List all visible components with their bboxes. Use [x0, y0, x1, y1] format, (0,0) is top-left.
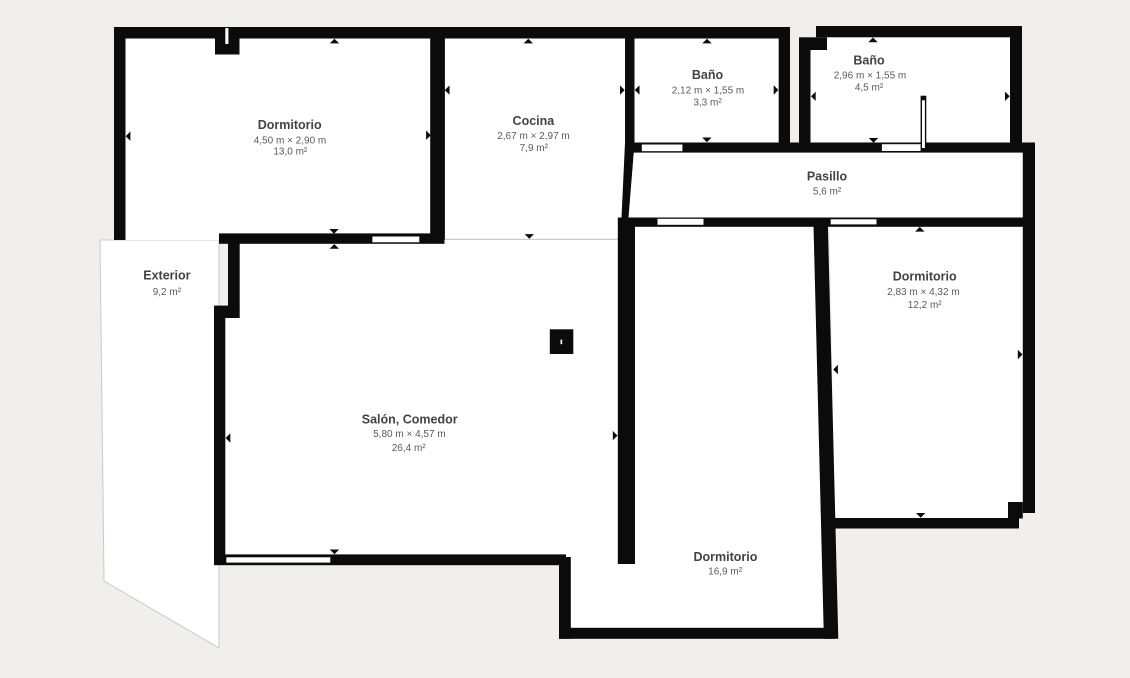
svg-text:7,9 m²: 7,9 m² [520, 143, 549, 154]
svg-text:Baño: Baño [692, 68, 724, 82]
svg-text:9,2 m²: 9,2 m² [153, 287, 182, 298]
svg-text:3,3 m²: 3,3 m² [693, 98, 722, 109]
svg-text:Pasillo: Pasillo [807, 170, 848, 184]
svg-text:5,6 m²: 5,6 m² [813, 186, 842, 197]
svg-text:2,67 m × 2,97 m: 2,67 m × 2,97 m [497, 131, 570, 142]
svg-text:Cocina: Cocina [513, 114, 556, 128]
svg-text:16,9 m²: 16,9 m² [708, 566, 743, 577]
svg-text:12,2 m²: 12,2 m² [908, 300, 943, 311]
svg-text:Exterior: Exterior [143, 268, 190, 282]
svg-text:Salón, Comedor: Salón, Comedor [362, 413, 458, 427]
svg-text:Dormitorio: Dormitorio [258, 118, 322, 132]
svg-text:2,83 m × 4,32 m: 2,83 m × 4,32 m [887, 287, 960, 298]
svg-text:2,12 m × 1,55 m: 2,12 m × 1,55 m [672, 85, 745, 96]
svg-text:2,96 m × 1,55 m: 2,96 m × 1,55 m [834, 70, 907, 81]
svg-text:4,5 m²: 4,5 m² [855, 83, 884, 94]
svg-text:Dormitorio: Dormitorio [693, 550, 757, 564]
svg-text:26,4 m²: 26,4 m² [392, 443, 427, 454]
svg-text:13,0 m²: 13,0 m² [273, 147, 308, 158]
svg-text:4,50 m × 2,90 m: 4,50 m × 2,90 m [254, 136, 327, 147]
svg-text:Dormitorio: Dormitorio [893, 270, 957, 284]
svg-text:5,80 m × 4,57 m: 5,80 m × 4,57 m [373, 429, 446, 440]
svg-text:Baño: Baño [853, 53, 885, 67]
